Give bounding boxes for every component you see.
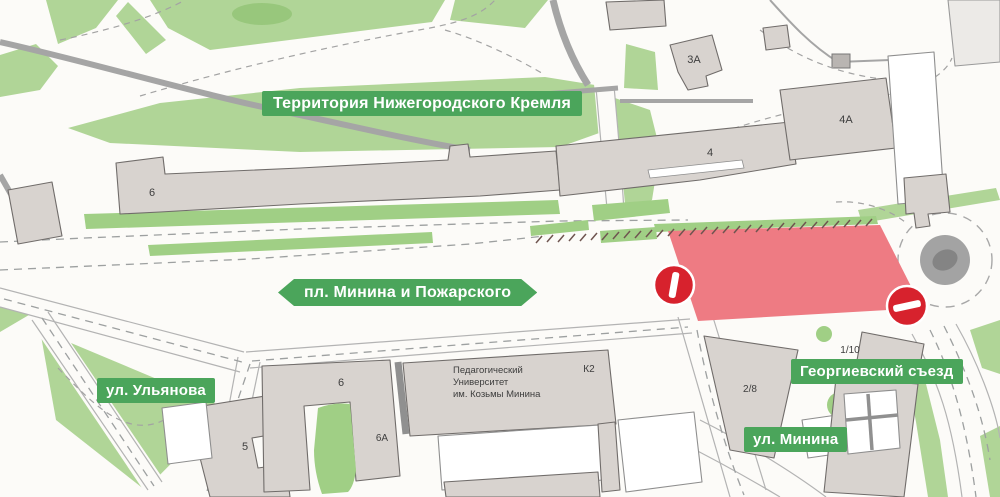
label-minina-street: ул. Минина — [744, 427, 847, 452]
label-building-6a: 6А — [376, 433, 389, 444]
map-canvas[interactable]: 6 3А 4 4А К2 6 6А 5 2/8 1/10 Педагогичес… — [0, 0, 1000, 497]
label-ulyanova-street: ул. Ульянова — [97, 378, 215, 403]
university-line-2: Университет — [453, 377, 509, 388]
label-georgievsky-descent: Георгиевский съезд — [791, 359, 963, 384]
no-entry-sign-west — [654, 265, 694, 305]
label-building-1-10: 1/10 — [840, 345, 860, 356]
label-building-6: 6 — [338, 377, 344, 389]
bench-marker — [832, 54, 850, 68]
label-building-4a: 4А — [839, 114, 853, 126]
closed-area-overlay — [536, 219, 927, 326]
label-building-4: 4 — [707, 147, 713, 159]
courtyard-green — [314, 404, 356, 495]
closure-polygon — [668, 225, 922, 321]
label-minin-square: пл. Минина и Пожарского — [278, 279, 537, 306]
no-entry-sign-east — [887, 286, 927, 326]
university-line-1: Педагогический — [453, 365, 523, 376]
label-building-3a: 3А — [687, 54, 701, 66]
university-line-3: им. Козьмы Минина — [453, 389, 541, 400]
label-building-k2: К2 — [583, 364, 595, 375]
map-graphics: 6 3А 4 4А К2 6 6А 5 2/8 1/10 Педагогичес… — [0, 0, 1000, 497]
label-building-5: 5 — [242, 441, 248, 453]
label-kremlin-building: 6 — [149, 187, 155, 199]
label-kremlin-territory: Территория Нижегородского Кремля — [262, 91, 582, 116]
label-building-2-8: 2/8 — [743, 384, 757, 395]
